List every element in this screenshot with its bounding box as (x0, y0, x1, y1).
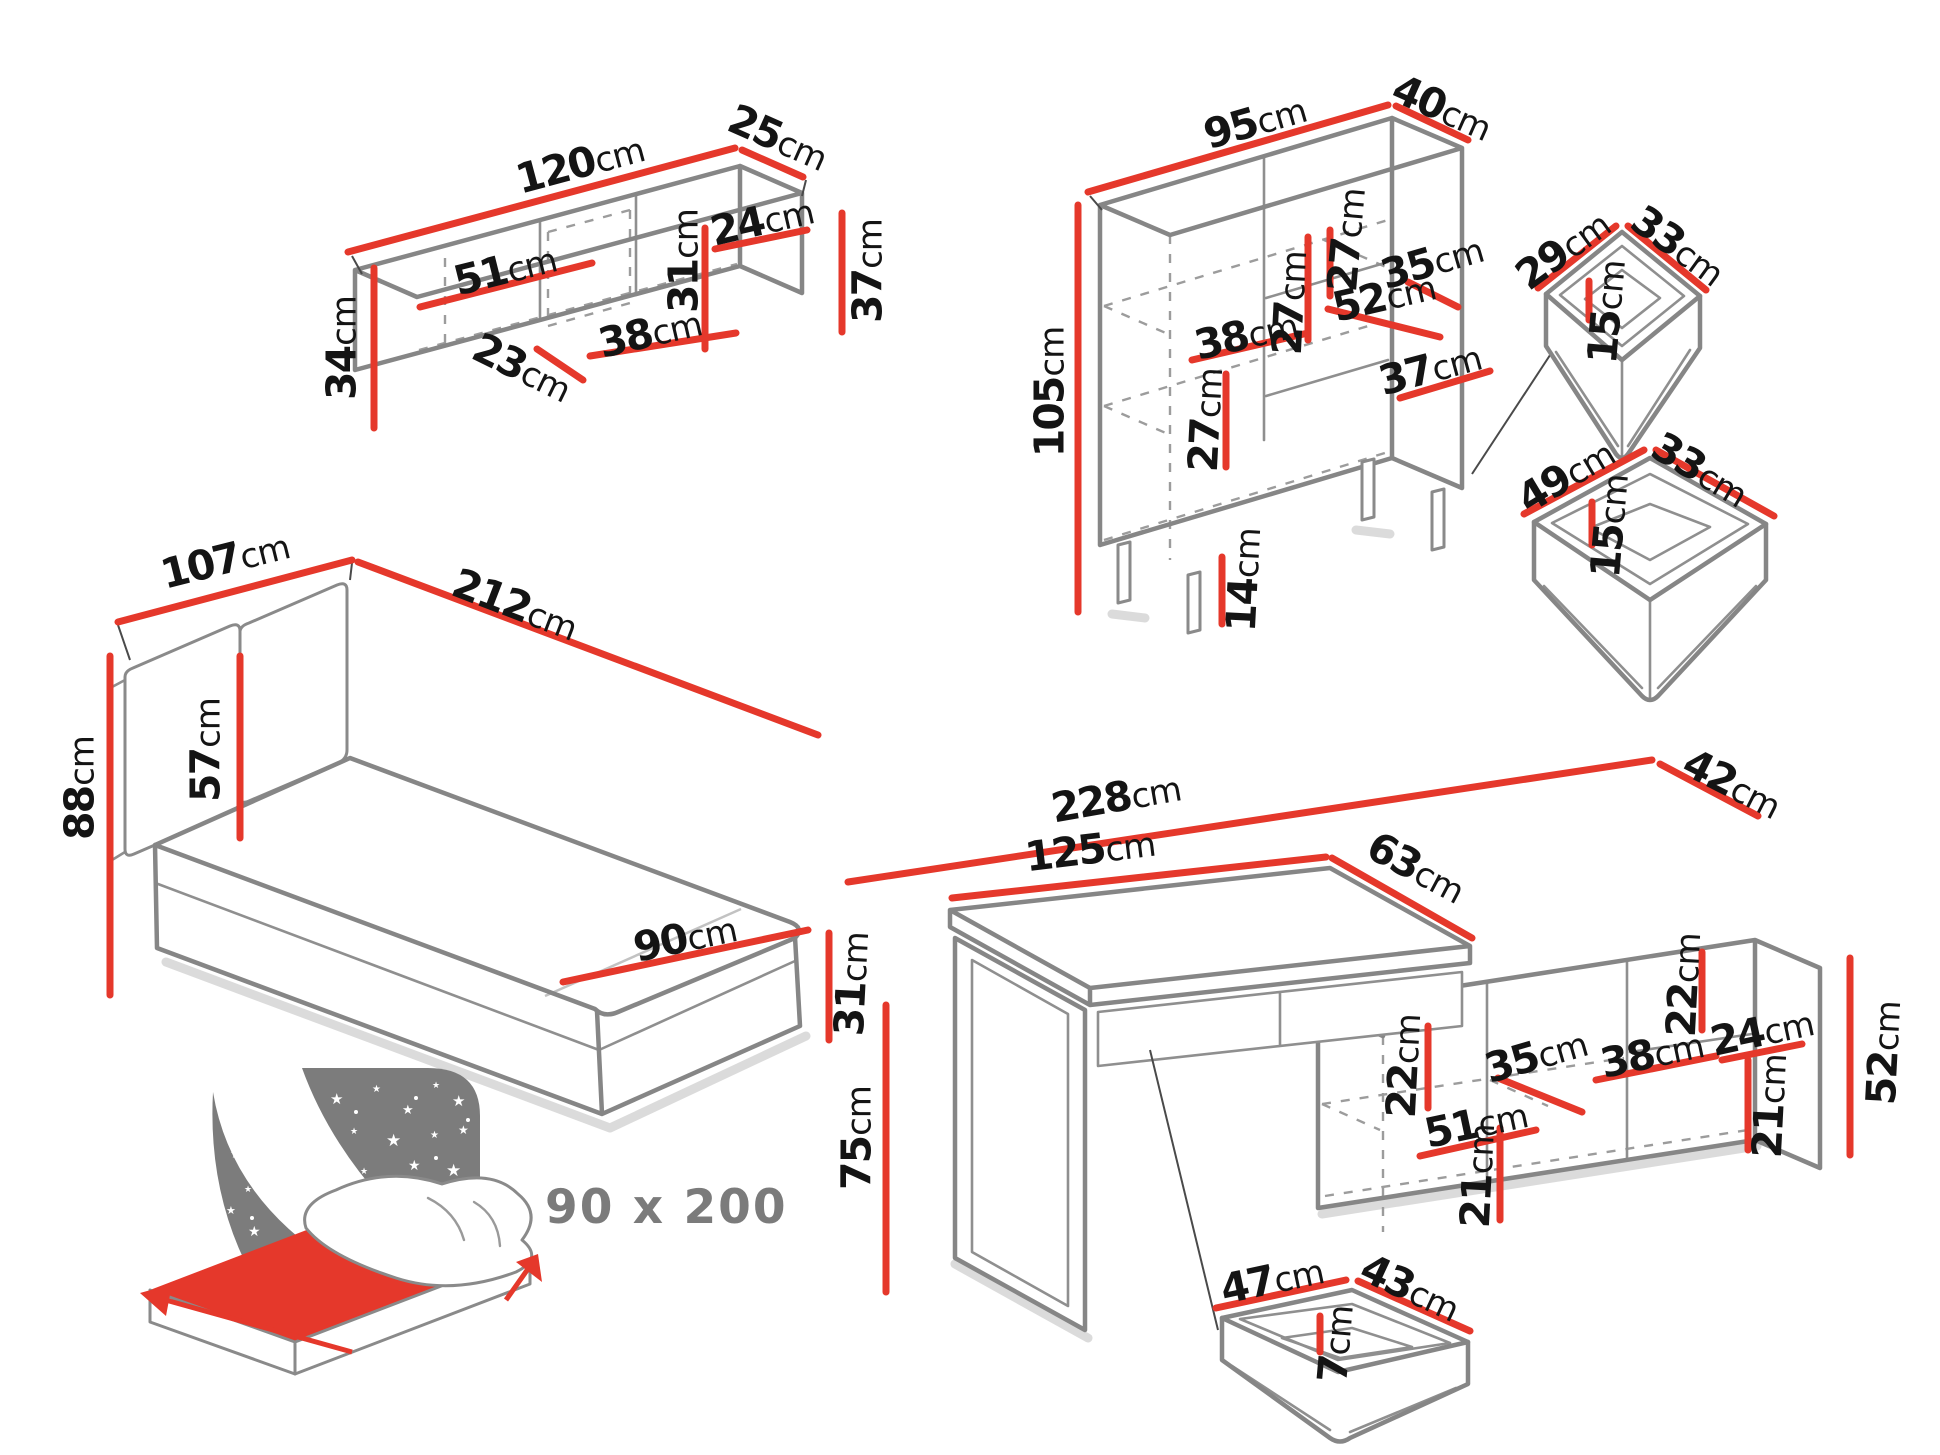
dim-value: 21 (1451, 1174, 1502, 1230)
svg-text:★: ★ (330, 1090, 343, 1108)
dim-unit: cm (189, 698, 229, 748)
svg-text:★: ★ (322, 1154, 332, 1167)
dim-value: 15 (1581, 523, 1633, 580)
dim-unit: cm (1033, 327, 1073, 377)
dim-bed-headboard-height: 88cm (60, 736, 101, 840)
svg-text:★: ★ (224, 1116, 233, 1127)
svg-text:★: ★ (248, 1224, 261, 1240)
svg-text:★: ★ (230, 1147, 242, 1162)
bed-drawing (110, 560, 829, 1128)
dim-value: 105 (1026, 378, 1074, 458)
furniture-dimensions-diagram: ★ ★ ★ ★ ★ ★ ★ ★ ★ ★ ★ ★ ★ ★ ★ ★ ★ ★ ★ ★ … (0, 0, 1940, 1455)
dim-desk-cabinet-height: 52cm (1861, 1000, 1907, 1106)
dim-unit: cm (1590, 259, 1634, 312)
svg-text:★: ★ (360, 1167, 368, 1177)
svg-text:★: ★ (430, 1130, 439, 1141)
dim-wall-shelf-side-height: 37cm (848, 219, 889, 323)
dim-value: 75 (833, 1137, 881, 1190)
dim-large-drawer-height: 15cm (1585, 472, 1635, 579)
dim-small-drawer-height: 15cm (1582, 258, 1632, 365)
dim-unit: cm (1273, 250, 1316, 302)
dim-unit: cm (325, 296, 365, 346)
dim-unit: cm (1128, 769, 1184, 817)
dim-value: 15 (1578, 309, 1630, 366)
dim-desk-drawer-height: 7cm (1312, 1304, 1360, 1385)
dim-unit: cm (1330, 187, 1374, 240)
dim-wall-shelf-height: 34cm (322, 296, 363, 400)
svg-text:★: ★ (386, 1131, 401, 1151)
dim-value: 27 (1179, 418, 1230, 474)
dim-value: 37 (844, 270, 892, 323)
dim-unit: cm (1103, 825, 1157, 871)
dim-unit: cm (1387, 1013, 1430, 1065)
dim-unit: cm (1867, 1000, 1910, 1052)
dim-value: 57 (182, 749, 230, 802)
dim-desk-height: 75cm (837, 1086, 878, 1190)
dim-unit: cm (1189, 367, 1232, 419)
dim-unit: cm (1227, 527, 1270, 579)
svg-text:★: ★ (458, 1123, 469, 1137)
dim-bookcase-height: 105cm (1030, 327, 1071, 457)
svg-text:★: ★ (402, 1103, 414, 1118)
dim-unit: cm (840, 1086, 880, 1136)
dim-value: 22 (1377, 1064, 1428, 1120)
dim-desk-right-inner-height: 21cm (1747, 1053, 1793, 1159)
svg-text:★: ★ (244, 1185, 252, 1195)
dim-bed-frame-height: 31cm (829, 931, 875, 1037)
dim-unit: cm (667, 209, 707, 259)
dim-unit: cm (851, 219, 891, 269)
dim-unit: cm (1318, 1304, 1362, 1357)
dim-unit: cm (1753, 1053, 1796, 1105)
dim-value: 88 (56, 787, 104, 840)
dim-value: 52 (1857, 1051, 1908, 1107)
dim-desk-cabinet-top-gap: 22cm (1661, 932, 1707, 1038)
dim-wall-shelf-inner-height: 31cm (664, 209, 705, 313)
dim-unit: cm (63, 736, 103, 786)
dim-bed-headboard-panel-height: 57cm (186, 698, 227, 802)
dim-unit: cm (835, 931, 878, 983)
dim-value: 14 (1217, 578, 1268, 634)
wall-shelf-drawing (348, 148, 842, 428)
dim-unit: cm (1593, 473, 1637, 526)
svg-text:★: ★ (372, 1084, 381, 1095)
dim-unit: cm (1667, 932, 1710, 984)
bed-icon: ★ ★ ★ ★ ★ ★ ★ ★ ★ ★ ★ ★ ★ ★ ★ ★ ★ ★ ★ ★ … (140, 1068, 542, 1374)
dim-desk-left-gap: 22cm (1381, 1013, 1427, 1119)
dim-bookcase-leg-height: 14cm (1221, 527, 1267, 633)
svg-text:★: ★ (446, 1161, 461, 1181)
dim-value: 125 (1022, 824, 1107, 881)
svg-text:★: ★ (350, 1127, 358, 1137)
svg-text:★: ★ (226, 1204, 236, 1217)
dim-value: 31 (660, 260, 708, 313)
dim-value: 7 (1308, 1354, 1358, 1385)
bed-size-caption: 90 x 200 (545, 1180, 788, 1235)
dim-desk-left-inner-height: 21cm (1455, 1123, 1501, 1229)
svg-text:★: ★ (432, 1081, 440, 1091)
svg-text:★: ★ (452, 1092, 465, 1110)
bookcase-drawing (1078, 105, 1556, 633)
dim-value: 34 (318, 347, 366, 400)
svg-text:★: ★ (408, 1158, 421, 1174)
dim-value: 31 (825, 982, 876, 1038)
dim-unit: cm (1461, 1123, 1504, 1175)
dim-bookcase-lower-gap: 27cm (1183, 367, 1229, 473)
dim-value: 21 (1743, 1104, 1794, 1160)
